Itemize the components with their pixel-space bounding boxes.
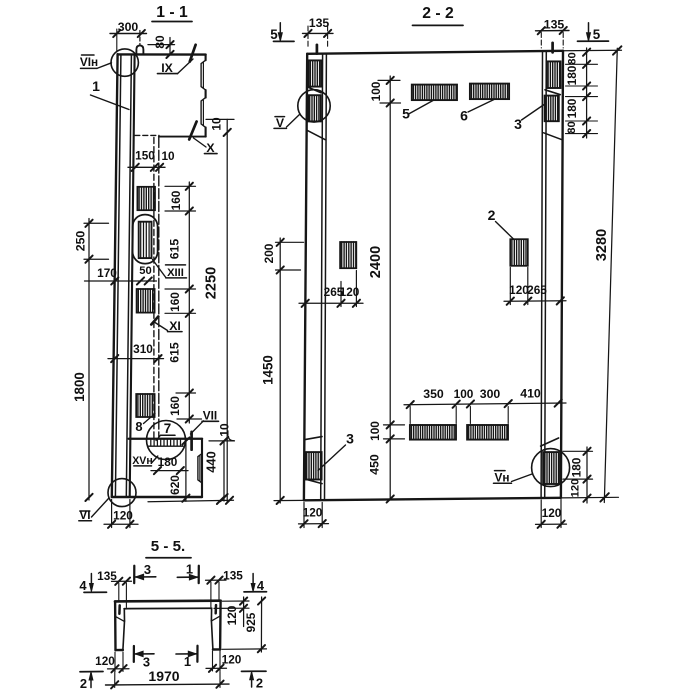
svg-text:620: 620: [168, 475, 182, 495]
svg-text:1450: 1450: [261, 355, 276, 385]
svg-text:7: 7: [164, 421, 171, 436]
svg-text:4: 4: [257, 578, 265, 593]
svg-text:450: 450: [368, 454, 382, 475]
svg-text:925: 925: [244, 612, 258, 632]
svg-text:120: 120: [222, 653, 242, 667]
svg-text:80: 80: [566, 121, 578, 133]
svg-text:2400: 2400: [368, 246, 384, 278]
svg-text:VII: VII: [203, 409, 217, 423]
svg-text:50: 50: [139, 265, 151, 277]
svg-text:2 - 2: 2 - 2: [422, 5, 454, 22]
svg-text:300: 300: [118, 20, 139, 34]
svg-text:80: 80: [153, 35, 167, 49]
svg-text:1: 1: [92, 78, 100, 94]
svg-text:1: 1: [186, 562, 193, 577]
svg-text:120: 120: [225, 605, 239, 625]
svg-text:10: 10: [218, 423, 232, 437]
svg-text:3280: 3280: [594, 229, 610, 261]
svg-text:150: 150: [135, 149, 155, 163]
svg-text:250: 250: [74, 231, 88, 252]
svg-text:4: 4: [79, 578, 87, 593]
svg-text:120: 120: [95, 654, 115, 668]
svg-text:1 - 1: 1 - 1: [156, 4, 188, 21]
svg-text:300: 300: [480, 387, 501, 401]
svg-text:2250: 2250: [204, 267, 220, 299]
svg-text:100: 100: [368, 421, 382, 441]
svg-text:615: 615: [168, 342, 182, 363]
svg-text:350: 350: [423, 387, 444, 401]
svg-text:1970: 1970: [148, 668, 179, 684]
svg-text:100: 100: [369, 81, 383, 101]
svg-text:5 - 5.: 5 - 5.: [151, 538, 185, 555]
svg-text:5: 5: [270, 27, 278, 42]
svg-text:VI: VI: [79, 508, 90, 522]
svg-text:310: 310: [133, 342, 153, 356]
svg-text:3: 3: [144, 562, 151, 577]
svg-text:2: 2: [256, 676, 263, 691]
svg-text:100: 100: [454, 387, 474, 401]
svg-text:8: 8: [135, 419, 142, 434]
svg-text:180: 180: [570, 457, 584, 477]
svg-text:2: 2: [488, 207, 496, 223]
svg-text:80: 80: [567, 52, 579, 64]
svg-text:3: 3: [514, 116, 522, 132]
svg-text:180: 180: [158, 455, 178, 469]
svg-text:6: 6: [460, 108, 468, 124]
svg-text:120: 120: [303, 506, 323, 520]
svg-text:615: 615: [168, 239, 182, 260]
svg-text:120: 120: [542, 506, 562, 520]
svg-text:VIн: VIн: [80, 55, 98, 69]
svg-text:10: 10: [161, 149, 175, 163]
svg-text:120: 120: [570, 479, 582, 498]
svg-text:5: 5: [593, 27, 601, 42]
svg-text:265: 265: [527, 283, 547, 297]
svg-text:3: 3: [346, 431, 354, 447]
svg-text:200: 200: [262, 243, 276, 263]
svg-text:135: 135: [223, 569, 243, 583]
svg-text:170: 170: [97, 266, 117, 280]
svg-text:160: 160: [168, 396, 182, 416]
svg-text:120: 120: [340, 285, 360, 299]
svg-text:160: 160: [169, 190, 183, 210]
svg-text:1: 1: [184, 654, 191, 669]
svg-text:120: 120: [113, 509, 133, 523]
svg-text:180: 180: [565, 98, 579, 118]
svg-text:135: 135: [97, 569, 117, 583]
svg-text:180: 180: [565, 65, 579, 85]
svg-text:Vн: Vн: [495, 471, 510, 485]
svg-text:135: 135: [309, 16, 330, 30]
svg-text:440: 440: [204, 451, 219, 473]
svg-text:1800: 1800: [72, 372, 87, 402]
svg-text:2: 2: [80, 676, 87, 691]
svg-text:410: 410: [520, 387, 541, 401]
svg-text:10: 10: [210, 117, 224, 131]
svg-text:135: 135: [544, 18, 565, 32]
svg-text:160: 160: [168, 292, 182, 312]
